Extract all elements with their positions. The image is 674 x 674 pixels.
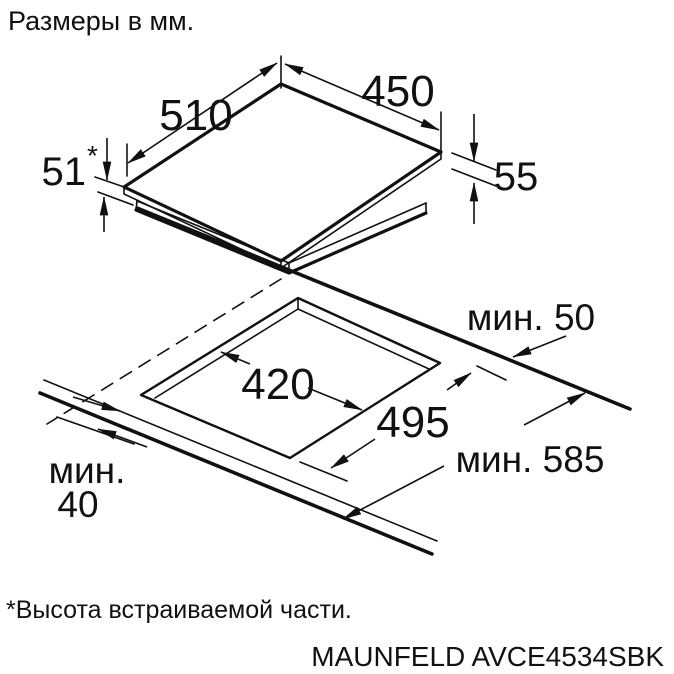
installation-diagram: 510 450 51 * 55 420 xyxy=(0,0,674,674)
dim-495-label: 495 xyxy=(376,398,449,447)
cooktop-top-view: 510 450 51 * 55 xyxy=(42,56,539,273)
dim-55-label: 55 xyxy=(494,155,539,199)
installation-diagram-page: 510 450 51 * 55 420 xyxy=(0,0,674,674)
dim-min50-arrow xyxy=(513,336,566,357)
dim-495-lower-tick xyxy=(300,462,347,481)
dim-min585-label: мин. 585 xyxy=(456,439,605,480)
dim-450-label: 450 xyxy=(361,67,434,116)
footnote: *Высота встраиваемой части. xyxy=(6,596,352,624)
dim-495-line-lower xyxy=(331,439,375,468)
model-name: MAUNFELD AVCE4534SBK xyxy=(311,641,664,672)
dim-495-upper-tick xyxy=(477,366,506,380)
page-title: Размеры в мм. xyxy=(8,6,194,36)
dim-420-line-right xyxy=(308,388,362,410)
dim-495-line-upper xyxy=(447,373,471,390)
dim-420-label: 420 xyxy=(241,360,314,409)
dim-510-label: 510 xyxy=(159,91,232,140)
dim-min585-line-lower xyxy=(343,466,444,519)
worktop-cutout-view: 420 495 мин. 50 мин. 585 мин. 40 xyxy=(40,208,630,554)
worktop-front-reference-line xyxy=(57,417,134,444)
dim-min40-arrow-left xyxy=(98,429,147,447)
dim-51-upper-tick xyxy=(95,177,130,189)
dim-51-asterisk: * xyxy=(87,140,98,171)
dim-51-label: 51 xyxy=(42,150,87,194)
dim-min50-label: мин. 50 xyxy=(467,297,595,338)
dim-min40-label-line2: 40 xyxy=(57,484,98,525)
dim-min585-line-upper xyxy=(524,393,585,425)
